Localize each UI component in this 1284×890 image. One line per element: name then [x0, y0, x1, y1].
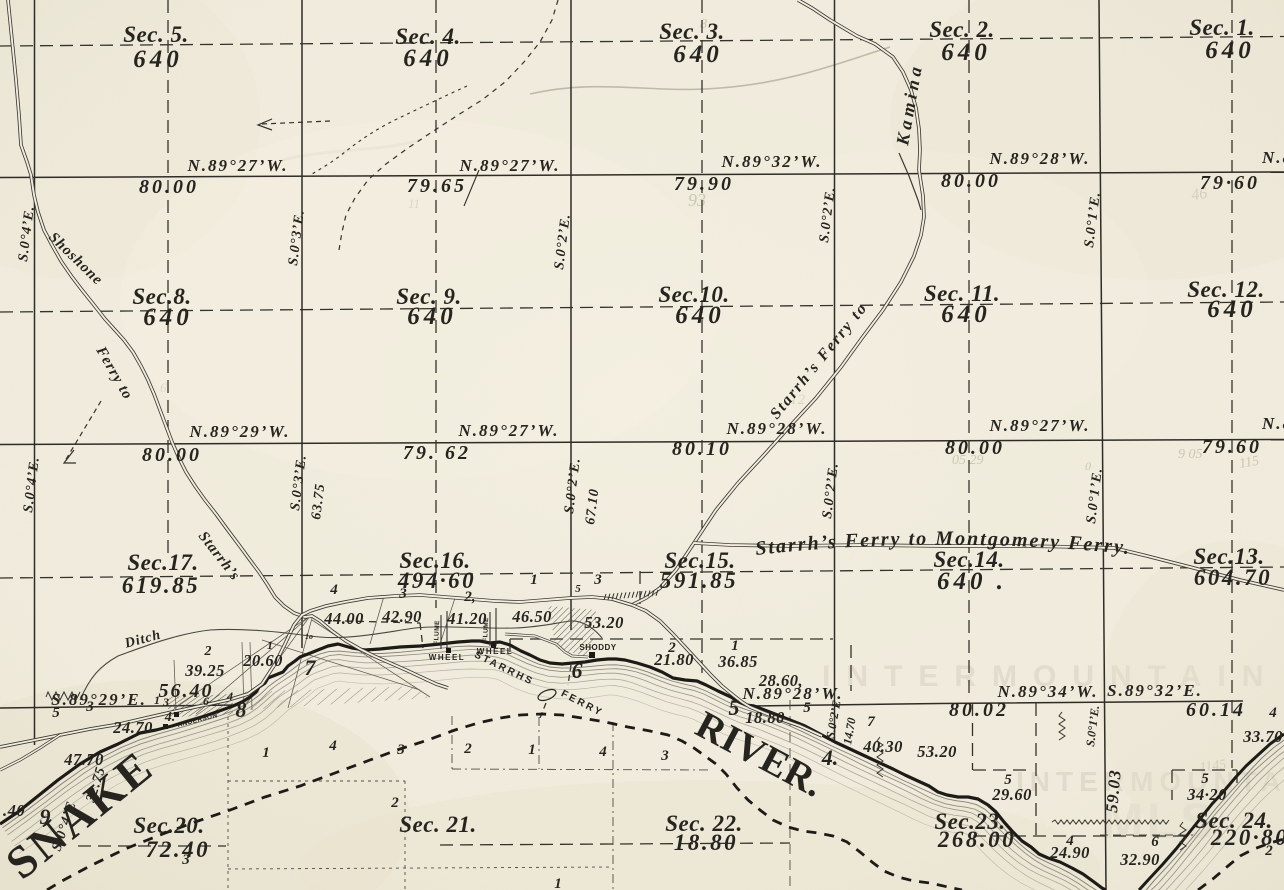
svg-text:9: 9 — [40, 804, 51, 829]
svg-text:N.89°29’W.: N.89°29’W. — [188, 422, 290, 441]
svg-text:80.00: 80.00 — [142, 444, 202, 466]
svg-text:2: 2 — [463, 741, 472, 757]
svg-text:7: 7 — [867, 714, 875, 730]
svg-text:79.90: 79.90 — [674, 173, 734, 195]
svg-text:N.89°27’W.: N.89°27’W. — [988, 416, 1090, 435]
svg-text:640: 640 — [673, 41, 723, 68]
svg-text:2: 2 — [1264, 843, 1273, 859]
svg-text:24.70: 24.70 — [112, 718, 153, 737]
svg-text:4: 4 — [226, 689, 233, 703]
svg-text:79. 62: 79. 62 — [403, 442, 471, 464]
svg-text:44.00: 44.00 — [323, 609, 364, 628]
svg-text:9 05: 9 05 — [1178, 447, 1203, 462]
svg-text:5: 5 — [52, 705, 60, 721]
svg-text:28.60,: 28.60, — [758, 671, 803, 690]
svg-text:80.00: 80.00 — [945, 437, 1005, 459]
svg-text:N.8: N.8 — [1261, 148, 1284, 167]
svg-text:2: 2 — [667, 640, 676, 656]
svg-text:1: 1 — [554, 876, 562, 890]
svg-text:79.60: 79.60 — [1202, 436, 1262, 458]
svg-text:41.20: 41.20 — [446, 609, 487, 628]
svg-text:1: 1 — [530, 572, 538, 588]
svg-text:N.89°27’W.: N.89°27’W. — [186, 156, 288, 175]
svg-text:4.: 4. — [164, 710, 176, 725]
svg-text:4: 4 — [598, 744, 607, 760]
svg-text:53.20: 53.20 — [584, 613, 624, 632]
svg-text:18.80: 18.80 — [745, 708, 785, 727]
svg-text:34·20: 34·20 — [1186, 785, 1227, 804]
svg-text:N.8: N.8 — [1261, 414, 1284, 433]
svg-text:640: 640 — [675, 302, 725, 329]
svg-text:2: 2 — [390, 795, 399, 811]
svg-text:4: 4 — [1065, 833, 1074, 849]
svg-text:8: 8 — [236, 697, 247, 722]
svg-text:2: 2 — [204, 644, 212, 659]
svg-text:3: 3 — [398, 586, 407, 602]
svg-text:220·80: 220·80 — [1210, 825, 1284, 850]
svg-text:604.70: 604.70 — [1194, 565, 1272, 590]
svg-text:640: 640 — [403, 45, 453, 72]
svg-text:N.89°27’W.: N.89°27’W. — [457, 421, 559, 440]
svg-text:80.10: 80.10 — [672, 438, 732, 460]
svg-text:33.70: 33.70 — [1242, 727, 1283, 746]
svg-text:Sec.17.: Sec.17. — [127, 550, 198, 575]
svg-text:Sec.20.: Sec.20. — [133, 813, 204, 838]
svg-text:3: 3 — [85, 699, 94, 715]
svg-text:640: 640 — [941, 301, 991, 328]
svg-text:619.85: 619.85 — [122, 573, 200, 598]
svg-text:4: 4 — [329, 582, 338, 598]
svg-text:6: 6 — [572, 658, 583, 683]
svg-text:1: 1 — [262, 745, 270, 761]
svg-text:WHEEL: WHEEL — [477, 647, 513, 656]
svg-text:32.90: 32.90 — [1119, 850, 1160, 869]
svg-text:46.50: 46.50 — [511, 607, 552, 626]
svg-text:5: 5 — [803, 700, 811, 716]
svg-text:268.00: 268.00 — [937, 827, 1016, 852]
svg-text:80.00: 80.00 — [139, 176, 199, 198]
svg-text:42.90: 42.90 — [381, 607, 422, 626]
svg-text:1: 1 — [154, 693, 160, 707]
svg-text:2,: 2, — [463, 589, 475, 605]
svg-text:5: 5 — [575, 583, 581, 595]
svg-text:640: 640 — [941, 39, 991, 66]
svg-text:79.65: 79.65 — [407, 175, 467, 197]
svg-text:N.89°27’W.: N.89°27’W. — [458, 156, 560, 175]
svg-text:39.25: 39.25 — [184, 661, 225, 680]
svg-text:4.: 4. — [821, 745, 839, 770]
svg-text:N.89°28’W.: N.89°28’W. — [988, 149, 1090, 168]
svg-text:20.60: 20.60 — [242, 651, 283, 670]
svg-text:60.14: 60.14 — [1186, 699, 1246, 721]
svg-text:6: 6 — [203, 694, 209, 708]
svg-text:36.85: 36.85 — [717, 652, 758, 671]
svg-text:80.00: 80.00 — [941, 170, 1001, 192]
svg-text:SHODDY: SHODDY — [579, 643, 616, 652]
svg-text:640 .: 640 . — [937, 568, 1007, 595]
svg-text:18.80: 18.80 — [674, 830, 738, 855]
svg-text:640: 640 — [1205, 37, 1255, 64]
svg-text:3: 3 — [162, 695, 169, 709]
svg-text:80.02: 80.02 — [949, 699, 1009, 721]
svg-text:640: 640 — [407, 303, 457, 330]
svg-text:FLUME: FLUME — [433, 620, 441, 645]
svg-text:79·60: 79·60 — [1200, 172, 1260, 194]
svg-text:640: 640 — [133, 46, 183, 73]
svg-text:5: 5 — [1004, 772, 1012, 788]
svg-text:59.03: 59.03 — [1102, 769, 1125, 814]
svg-text:3: 3 — [396, 742, 405, 758]
svg-text:6: 6 — [1151, 834, 1159, 850]
svg-text:S.89°32’E.: S.89°32’E. — [1107, 681, 1203, 700]
svg-text:47.70: 47.70 — [63, 750, 104, 769]
svg-text:N.89°34’W.: N.89°34’W. — [996, 682, 1098, 701]
svg-text:Sec. 21.: Sec. 21. — [399, 812, 476, 837]
svg-text:53.20: 53.20 — [917, 742, 957, 761]
svg-text:1: 1 — [528, 742, 536, 758]
svg-text:5: 5 — [729, 695, 740, 720]
svg-text:N.89°32’W.: N.89°32’W. — [720, 152, 822, 171]
svg-text:Sec. 5.: Sec. 5. — [123, 22, 188, 47]
svg-text:3: 3 — [593, 572, 602, 588]
svg-text:S.89°29’E.: S.89°29’E. — [51, 690, 147, 709]
svg-text:WHEEL: WHEEL — [429, 653, 465, 662]
svg-text:5: 5 — [1201, 771, 1209, 787]
svg-text:.40: .40 — [3, 801, 25, 820]
svg-text:7: 7 — [305, 655, 317, 680]
svg-text:4: 4 — [328, 738, 337, 754]
svg-text:1: 1 — [731, 638, 739, 654]
svg-text:1o: 1o — [305, 632, 313, 641]
svg-text:640: 640 — [143, 304, 193, 331]
svg-text:40.30: 40.30 — [862, 737, 903, 756]
svg-text:72.40: 72.40 — [146, 837, 210, 862]
svg-text:3: 3 — [660, 748, 669, 764]
svg-text:640: 640 — [1207, 296, 1257, 323]
svg-text:N.89°28’W.: N.89°28’W. — [725, 419, 827, 438]
svg-text:1: 1 — [267, 638, 273, 652]
svg-text:591.85: 591.85 — [660, 568, 738, 593]
svg-text:4: 4 — [1268, 705, 1277, 721]
svg-text:3: 3 — [181, 852, 190, 868]
